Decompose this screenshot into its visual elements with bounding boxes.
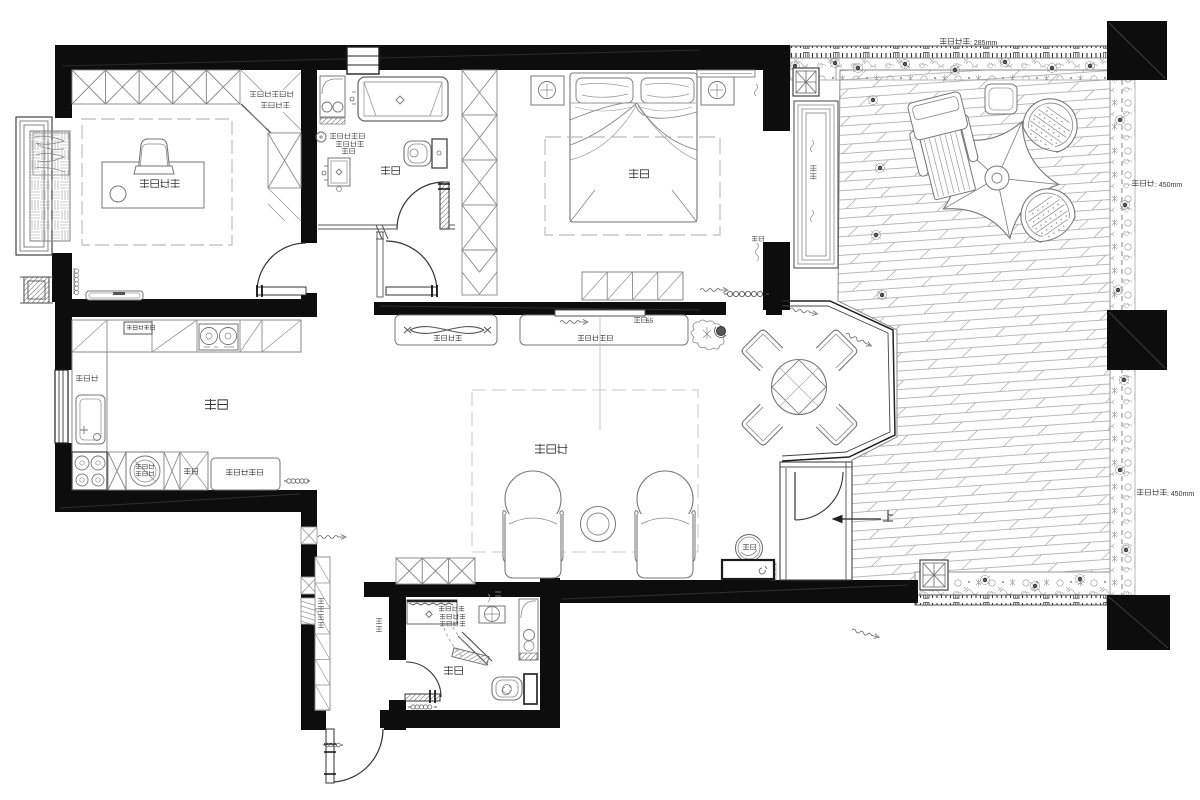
svg-text:: 450mm: : 450mm: [1167, 491, 1194, 498]
svg-text:65: 65: [646, 318, 654, 325]
svg-text:: 285mm: : 285mm: [970, 40, 997, 47]
svg-text:: 450mm: : 450mm: [1155, 182, 1182, 189]
